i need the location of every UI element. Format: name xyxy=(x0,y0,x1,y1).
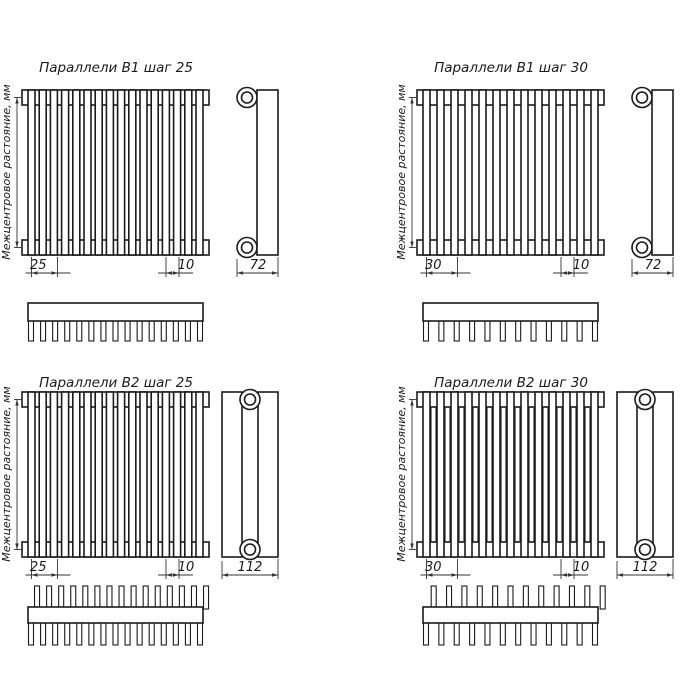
tube xyxy=(95,392,102,557)
tube-width-dimension-label: 10 xyxy=(573,258,590,273)
tube xyxy=(39,392,46,557)
comb-tooth-back xyxy=(59,586,64,609)
comb-tooth-front xyxy=(470,621,475,645)
technical-drawing: Параллели В2 шаг 25 Межцентровое растоян… xyxy=(0,354,305,654)
pitch-dimension-label: 30 xyxy=(425,258,442,273)
comb-tooth xyxy=(424,319,429,341)
depth-dimension-label: 112 xyxy=(633,560,658,575)
tube xyxy=(84,392,91,557)
view-title: Параллели В1 шаг 30 xyxy=(434,60,588,76)
tube xyxy=(423,392,430,557)
comb-tooth-back xyxy=(191,586,196,609)
technical-drawing: Параллели В1 шаг 30 Межцентровое растоян… xyxy=(395,52,700,352)
tube xyxy=(521,90,528,255)
comb-tooth-back xyxy=(143,586,148,609)
tube xyxy=(437,90,444,255)
comb-tooth xyxy=(185,319,190,341)
tube xyxy=(28,392,35,557)
tube xyxy=(174,392,181,557)
tube xyxy=(118,392,125,557)
side-column xyxy=(652,90,673,255)
tube xyxy=(84,90,91,255)
back-tube xyxy=(487,407,492,542)
center-distance-axis-label: Межцентровое растояние, мм xyxy=(0,386,13,561)
tube xyxy=(465,90,472,255)
tube xyxy=(535,392,542,557)
tube xyxy=(62,90,69,255)
comb-tooth xyxy=(562,319,567,341)
drawing-geometry xyxy=(409,390,673,646)
tube xyxy=(28,90,35,255)
comb-tooth xyxy=(77,319,82,341)
comb-tooth xyxy=(485,319,490,341)
center-distance-axis-label: Межцентровое растояние, мм xyxy=(0,84,13,259)
tube xyxy=(465,392,472,557)
drawing-parallels-b2-step-30: Параллели В2 шаг 30 Межцентровое растоян… xyxy=(395,354,700,654)
comb-tooth xyxy=(53,319,58,341)
tube xyxy=(162,392,169,557)
tube xyxy=(73,90,80,255)
tube xyxy=(451,90,458,255)
back-tube xyxy=(473,407,478,542)
tube xyxy=(196,90,203,255)
comb-tooth-back xyxy=(167,586,172,609)
comb-tooth-back xyxy=(107,586,112,609)
tube xyxy=(451,392,458,557)
comb-tooth-back xyxy=(431,586,436,609)
pitch-dimension-label: 30 xyxy=(425,560,442,575)
comb-tooth-back xyxy=(204,586,209,609)
comb-tooth-back xyxy=(155,586,160,609)
back-tube xyxy=(571,407,576,542)
tube xyxy=(118,90,125,255)
comb-bar xyxy=(423,607,598,623)
tube xyxy=(185,392,192,557)
comb-tooth-front xyxy=(137,621,142,645)
tube xyxy=(140,392,147,557)
comb-tooth-back xyxy=(179,586,184,609)
comb-tooth-front xyxy=(500,621,505,645)
tube xyxy=(521,392,528,557)
tube-width-dimension-label: 10 xyxy=(178,258,195,273)
comb-tooth xyxy=(198,319,203,341)
side-column-front xyxy=(617,392,637,557)
center-distance-axis-label: Межцентровое растояние, мм xyxy=(395,84,408,259)
tube xyxy=(151,392,158,557)
back-tube xyxy=(431,407,436,542)
back-tube xyxy=(529,407,534,542)
comb-tooth-back xyxy=(47,586,52,609)
comb-tooth xyxy=(65,319,70,341)
comb-tooth-back xyxy=(477,586,482,609)
comb-tooth-front xyxy=(516,621,521,645)
tube xyxy=(185,90,192,255)
comb-bar xyxy=(28,607,203,623)
tube xyxy=(493,392,500,557)
tube xyxy=(577,392,584,557)
tube xyxy=(591,90,598,255)
pitch-dimension-label: 25 xyxy=(30,560,47,575)
tube xyxy=(549,392,556,557)
comb-tooth xyxy=(516,319,521,341)
comb-tooth-front xyxy=(125,621,130,645)
back-tube xyxy=(501,407,506,542)
tube xyxy=(129,90,136,255)
drawing-parallels-b2-step-25: Параллели В2 шаг 25 Межцентровое растоян… xyxy=(0,354,305,654)
tube xyxy=(507,392,514,557)
drawing-geometry xyxy=(14,88,278,342)
tube xyxy=(50,90,57,255)
tube xyxy=(507,90,514,255)
tube xyxy=(151,90,158,255)
center-distance-axis-label: Межцентровое растояние, мм xyxy=(395,386,408,561)
comb-tooth-back xyxy=(71,586,76,609)
tube xyxy=(73,392,80,557)
tube xyxy=(106,392,113,557)
comb-tooth xyxy=(593,319,598,341)
comb-tooth-front xyxy=(454,621,459,645)
comb-tooth-front xyxy=(149,621,154,645)
comb-tooth xyxy=(454,319,459,341)
tube xyxy=(493,90,500,255)
tube xyxy=(563,392,570,557)
tube xyxy=(535,90,542,255)
comb-tooth xyxy=(173,319,178,341)
comb-bar xyxy=(423,303,598,321)
tube xyxy=(196,392,203,557)
comb-bar xyxy=(28,303,203,321)
comb-tooth xyxy=(89,319,94,341)
tube xyxy=(549,90,556,255)
back-tube xyxy=(445,407,450,542)
comb-tooth-front xyxy=(198,621,203,645)
comb-tooth-back xyxy=(523,586,528,609)
back-tube xyxy=(459,407,464,542)
depth-dimension-label: 72 xyxy=(250,258,267,273)
comb-tooth-back xyxy=(119,586,124,609)
tube xyxy=(479,90,486,255)
comb-tooth-back xyxy=(600,586,605,609)
comb-tooth-front xyxy=(89,621,94,645)
tube xyxy=(95,90,102,255)
comb-tooth xyxy=(149,319,154,341)
back-tube xyxy=(515,407,520,542)
comb-tooth-back xyxy=(131,586,136,609)
pitch-dimension-label: 25 xyxy=(30,258,47,273)
comb-tooth-front xyxy=(485,621,490,645)
comb-tooth xyxy=(29,319,34,341)
comb-tooth-back xyxy=(493,586,498,609)
tube xyxy=(129,392,136,557)
comb-tooth-back xyxy=(539,586,544,609)
comb-tooth xyxy=(439,319,444,341)
comb-tooth xyxy=(41,319,46,341)
comb-tooth-back xyxy=(83,586,88,609)
technical-drawing: Параллели В2 шаг 30 Межцентровое растоян… xyxy=(395,354,700,654)
depth-dimension-label: 112 xyxy=(238,560,263,575)
comb-tooth-back xyxy=(554,586,559,609)
comb-tooth-front xyxy=(29,621,34,645)
comb-tooth-front xyxy=(531,621,536,645)
comb-tooth-front xyxy=(562,621,567,645)
comb-tooth-front xyxy=(41,621,46,645)
comb-tooth-front xyxy=(593,621,598,645)
comb-tooth-back xyxy=(447,586,452,609)
back-tube xyxy=(557,407,562,542)
tube xyxy=(50,392,57,557)
comb-tooth-front xyxy=(173,621,178,645)
drawing-geometry xyxy=(409,88,673,342)
side-column xyxy=(257,90,278,255)
comb-tooth xyxy=(125,319,130,341)
comb-tooth-back xyxy=(569,586,574,609)
comb-tooth-front xyxy=(161,621,166,645)
comb-tooth-back xyxy=(585,586,590,609)
drawing-geometry xyxy=(14,390,278,646)
comb-tooth-back xyxy=(95,586,100,609)
comb-tooth xyxy=(577,319,582,341)
tube xyxy=(563,90,570,255)
comb-tooth-front xyxy=(424,621,429,645)
comb-tooth-front xyxy=(77,621,82,645)
comb-tooth xyxy=(161,319,166,341)
drawing-parallels-b1-step-25: Параллели В1 шаг 25 Межцентровое растоян… xyxy=(0,52,305,352)
comb-tooth xyxy=(113,319,118,341)
tube-width-dimension-label: 10 xyxy=(573,560,590,575)
side-column-back xyxy=(653,392,673,557)
back-tube xyxy=(585,407,590,542)
comb-tooth xyxy=(101,319,106,341)
tube xyxy=(577,90,584,255)
comb-tooth xyxy=(531,319,536,341)
tube xyxy=(140,90,147,255)
comb-tooth-front xyxy=(101,621,106,645)
comb-tooth-back xyxy=(508,586,513,609)
view-title: Параллели В2 шаг 25 xyxy=(39,375,193,391)
tube xyxy=(174,90,181,255)
comb-tooth-back xyxy=(35,586,40,609)
tube xyxy=(591,392,598,557)
tube xyxy=(162,90,169,255)
back-tube xyxy=(543,407,548,542)
technical-drawing: Параллели В1 шаг 25 Межцентровое растоян… xyxy=(0,52,305,352)
radiator-drawing-sheet: Параллели В1 шаг 25 Межцентровое растоян… xyxy=(0,0,700,700)
comb-tooth-front xyxy=(65,621,70,645)
tube xyxy=(106,90,113,255)
comb-tooth-back xyxy=(462,586,467,609)
comb-tooth-front xyxy=(53,621,58,645)
view-title: Параллели В2 шаг 30 xyxy=(434,375,588,391)
tube-width-dimension-label: 10 xyxy=(178,560,195,575)
comb-tooth xyxy=(470,319,475,341)
comb-tooth-front xyxy=(439,621,444,645)
depth-dimension-label: 72 xyxy=(645,258,662,273)
drawing-parallels-b1-step-30: Параллели В1 шаг 30 Межцентровое растоян… xyxy=(395,52,700,352)
side-column-front xyxy=(222,392,242,557)
tube xyxy=(479,392,486,557)
tube xyxy=(39,90,46,255)
view-title: Параллели В1 шаг 25 xyxy=(39,60,193,76)
comb-tooth xyxy=(500,319,505,341)
comb-tooth xyxy=(546,319,551,341)
comb-tooth-front xyxy=(546,621,551,645)
side-column-back xyxy=(258,392,278,557)
tube xyxy=(437,392,444,557)
tube xyxy=(62,392,69,557)
tube xyxy=(423,90,430,255)
comb-tooth-front xyxy=(185,621,190,645)
comb-tooth-front xyxy=(577,621,582,645)
comb-tooth-front xyxy=(113,621,118,645)
comb-tooth xyxy=(137,319,142,341)
